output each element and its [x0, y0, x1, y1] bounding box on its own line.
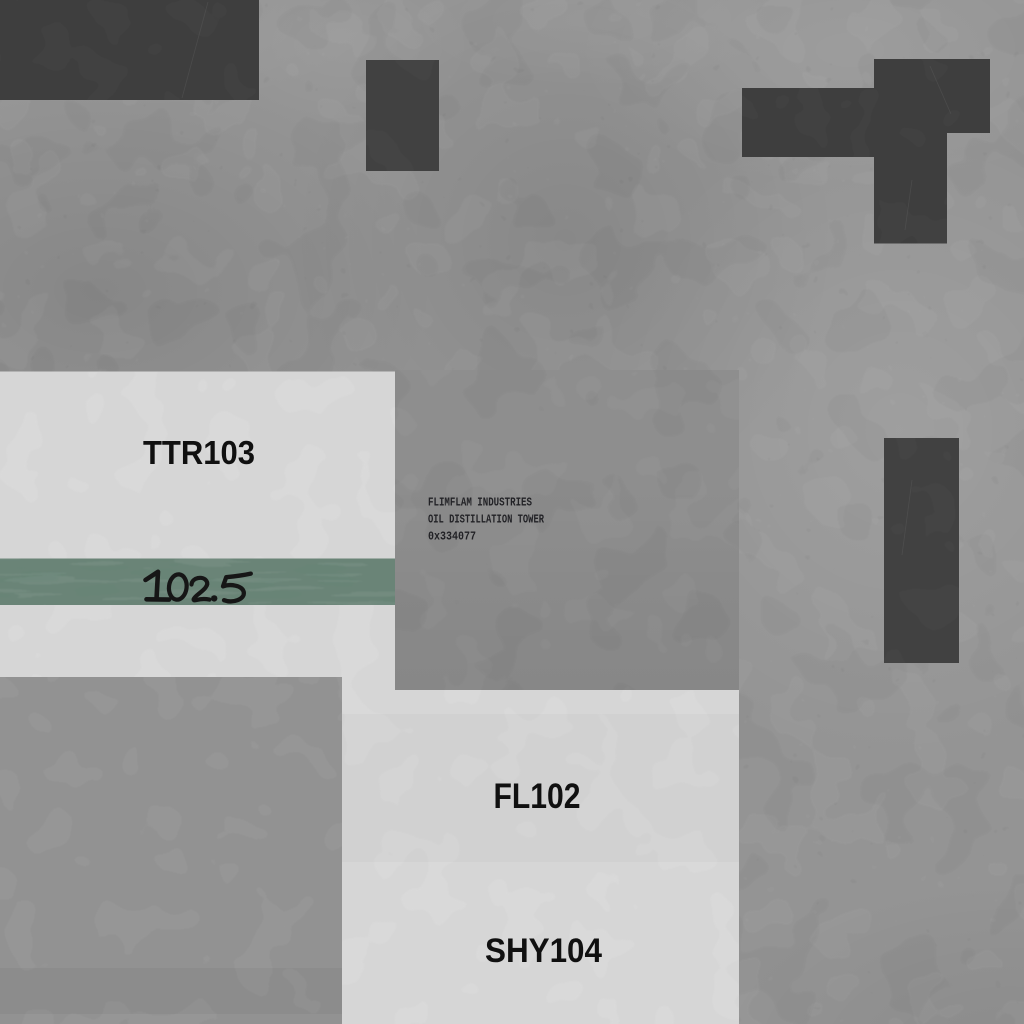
svg-text:TTR103: TTR103: [143, 434, 255, 471]
svg-text:FLIMFLAM INDUSTRIES: FLIMFLAM INDUSTRIES: [428, 496, 532, 510]
svg-text:0x334077: 0x334077: [428, 530, 476, 544]
svg-text:OIL DISTILLATION TOWER: OIL DISTILLATION TOWER: [428, 513, 545, 527]
svg-text:FL102: FL102: [494, 777, 581, 816]
svg-text:SHY104: SHY104: [485, 932, 602, 970]
